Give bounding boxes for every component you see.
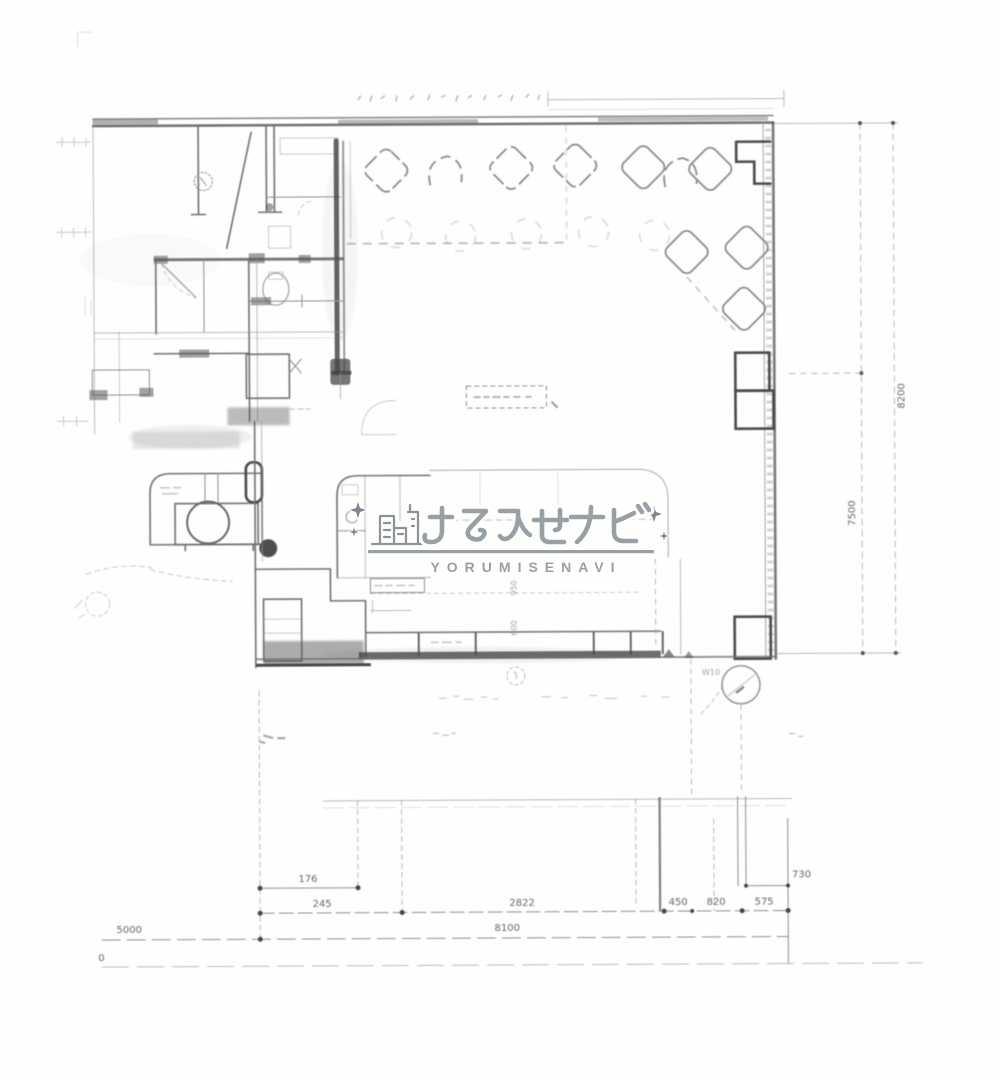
top-wall	[93, 116, 773, 127]
dim-820: 820	[707, 897, 726, 908]
hall-annotation-box	[466, 386, 557, 408]
watermark-logo: YORUMISENAVI	[346, 498, 671, 575]
watermark-jp-glyphs	[425, 504, 649, 542]
dim-730: 730	[792, 869, 811, 880]
dim-176: 176	[298, 874, 317, 885]
top-dimension-line	[78, 29, 784, 113]
floor-plan-drawing: 950 600	[0, 0, 1000, 1082]
door-swing-symbol: W10	[691, 659, 761, 794]
upper-left-rooms	[56, 125, 341, 249]
dim-7500: 7500	[847, 500, 858, 526]
entrance-door-arc	[361, 401, 395, 435]
dim-450: 450	[669, 897, 688, 908]
left-outer-wall	[93, 119, 95, 434]
dim-575: 575	[755, 897, 774, 908]
dim-5000: 5000	[116, 925, 142, 936]
dim-zero: 0	[98, 953, 104, 964]
dim-2822: 2822	[509, 898, 535, 909]
dining-area-seating	[346, 125, 771, 335]
dim-8200: 8200	[896, 383, 907, 409]
dim-w10: W10	[702, 668, 720, 677]
watermark-en-text: YORUMISENAVI	[430, 559, 621, 575]
right-dimensions: 7500 8200	[775, 121, 909, 656]
dim-245: 245	[313, 899, 332, 910]
scan-artifacts	[80, 160, 640, 663]
watermark-underline	[368, 550, 654, 553]
city-skyline-icon	[372, 505, 422, 544]
toilet-rooms	[57, 253, 345, 450]
dim-8100: 8100	[494, 923, 520, 934]
scanned-floor-plan-page: よるみせナビ	[0, 0, 1000, 1082]
bottom-dimensions: 176 730 245 2822 450 820 575 5000 8100 0	[97, 688, 923, 967]
kitchen-block	[150, 462, 277, 558]
dim-counter-600: 600	[510, 620, 519, 635]
